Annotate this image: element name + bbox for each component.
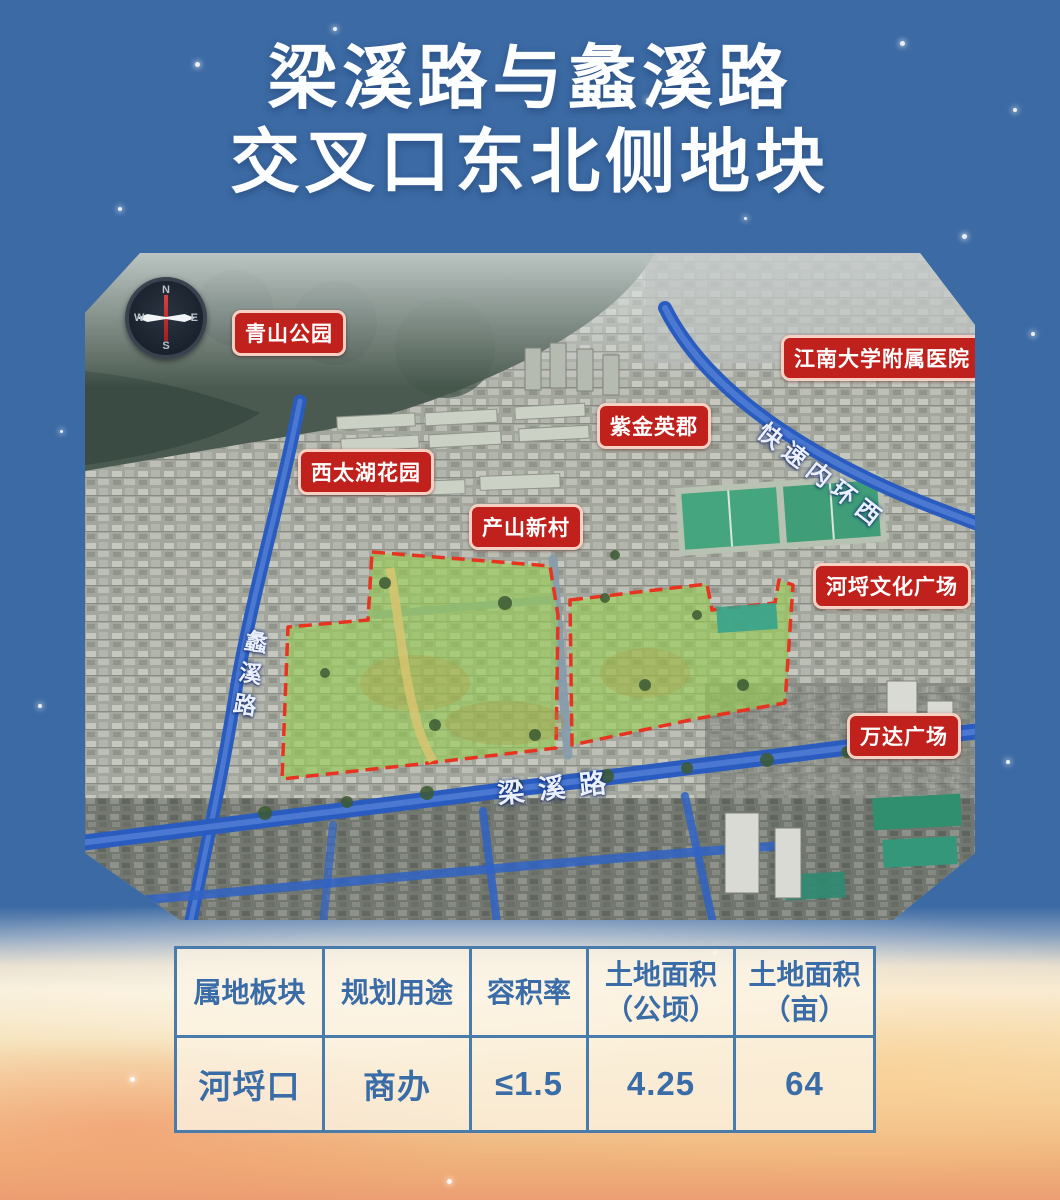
cell-area-mu: 64	[735, 1037, 875, 1132]
title-line-2: 交叉口东北侧地块	[0, 120, 1060, 204]
page-title: 梁溪路与蠡溪路 交叉口东北侧地块	[0, 36, 1060, 204]
aerial-map: N S W E 青山公园 西太湖花园 紫金英郡 江南大学附属医院 产山新村 河埒…	[85, 253, 975, 920]
compass-north-label: N	[162, 284, 170, 296]
map-label-qingshan-park: 青山公园	[232, 310, 346, 356]
map-label-helie-plaza: 河埒文化广场	[813, 563, 971, 609]
cell-planned-use: 商办	[324, 1037, 471, 1132]
compass-west-label: W	[134, 312, 144, 324]
table-header-row: 属地板块 规划用途 容积率 土地面积 （公顷） 土地面积 （亩）	[176, 948, 875, 1037]
compass-south-label: S	[162, 340, 169, 352]
map-label-wanda-plaza: 万达广场	[847, 713, 961, 759]
cell-district: 河埒口	[176, 1037, 324, 1132]
title-line-1: 梁溪路与蠡溪路	[0, 36, 1060, 120]
header-plot-ratio: 容积率	[471, 948, 588, 1037]
header-planned-use: 规划用途	[324, 948, 471, 1037]
cell-area-hectares: 4.25	[588, 1037, 735, 1132]
header-area-mu: 土地面积 （亩）	[735, 948, 875, 1037]
table-row: 河埒口 商办 ≤1.5 4.25 64	[176, 1037, 875, 1132]
map-label-chanshan-village: 产山新村	[469, 504, 583, 550]
compass-east-label: E	[191, 312, 198, 324]
poster: 梁溪路与蠡溪路 交叉口东北侧地块	[0, 0, 1060, 1200]
header-area-hectares: 土地面积 （公顷）	[588, 948, 735, 1037]
map-label-zijin-yingjun: 紫金英郡	[597, 403, 711, 449]
cell-plot-ratio: ≤1.5	[471, 1037, 588, 1132]
compass-icon: N S W E	[125, 277, 207, 359]
map-label-jiangnan-hospital: 江南大学附属医院	[781, 335, 983, 381]
land-info-table: 属地板块 规划用途 容积率 土地面积 （公顷） 土地面积 （亩） 河埒口 商办 …	[174, 946, 876, 1133]
map-label-xitaihu-garden: 西太湖花园	[298, 449, 434, 495]
header-district: 属地板块	[176, 948, 324, 1037]
